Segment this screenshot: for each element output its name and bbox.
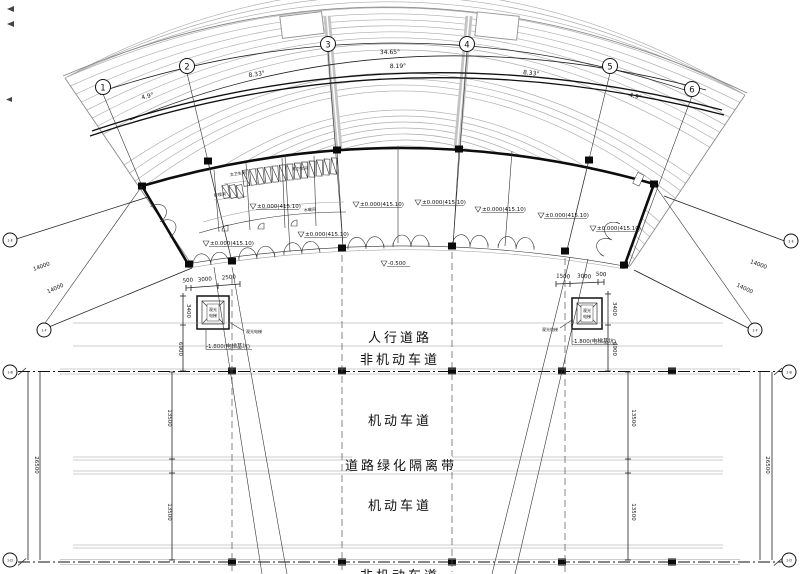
svg-text:1-B: 1-B [786,371,792,375]
elevator-label: 电梯 [209,312,217,318]
grid-bubble-4: 4 [460,37,475,52]
grid-bubble-1: 1 [96,80,111,95]
svg-text:1-F: 1-F [41,329,46,333]
corner-marks [6,6,14,102]
end-detail-box [633,172,644,186]
side-bubble-right-diag-mid: 1-F [748,323,762,337]
grid-bubble-3-label: 3 [325,41,330,51]
road-label-nonmotor-bottom: 非机动车道 [360,568,440,574]
dim-half-width: 26500 [33,456,39,474]
svg-text:1-E: 1-E [788,240,794,244]
road-zone: 人行道路 非机动车道 机动车道 道路绿化隔离带 机动车道 非机动车道 [18,252,782,574]
elevator-callout: 观光电梯 [246,328,262,334]
column-square [333,147,341,154]
elevation-marker: ±0.000(415.10) [250,204,301,210]
dim-3-4-outer: 34.65° [380,49,400,56]
side-bubble-right-row: 1-B [782,365,796,379]
dim-diag: 14000 [32,261,51,273]
room-label-2: 女卫生间 [229,169,246,177]
elevator-left: 500 3000 2500 观光 电梯 观光电梯 -1.800(电梯基坑) [182,274,262,350]
elevation-marker: ±0.000(415.10) [353,202,404,208]
side-bubble-left-diag-top: 1-E [3,233,17,247]
entry-dim: 3000 [198,276,213,283]
grid-bubble-6: 6 [685,82,700,97]
door-swing [452,234,488,247]
floor-plan-canvas: 4.9° 8.33° 34.65° 8.19° 8.33° 4.9° 1 2 3… [0,0,800,574]
dim-motor-lower: 13500 [166,503,172,521]
dim-sidewalk: 3400 [185,304,191,318]
room-label-4: 水暖间 [304,206,316,213]
dim-3-4-inner: 8.19° [390,63,406,70]
room-label-1: 男卫生间 [292,164,308,171]
site-plan-drawing: 4.9° 8.33° 34.65° 8.19° 8.33° 4.9° 1 2 3… [0,0,800,574]
road-label-nonmotor: 非机动车道 [360,352,440,368]
column-square [228,258,236,265]
grid-dimension-labels: 4.9° 8.33° 34.65° 8.19° 8.33° 4.9° [141,49,643,102]
elevator-label: 观光 [209,306,217,312]
dim-diag: 14000 [735,283,754,296]
left-end-wall [142,186,188,264]
road-label-sidewalk: 人行道路 [368,330,432,346]
svg-text:1-F: 1-F [752,329,757,333]
column-square [455,146,463,153]
grid-bubble-6-label: 6 [689,86,694,96]
elevation-marker: ±0.000(415.10) [590,226,641,232]
grid-bubble-5-label: 5 [607,63,612,73]
canopy-joints [280,12,519,150]
canopy-right-edge [630,95,745,266]
elevator-callout: 观光电梯 [542,326,558,332]
svg-text:±0.000(415.10): ±0.000(415.10) [482,207,526,213]
door-swing [348,236,384,249]
svg-text:±0.000(415.10): ±0.000(415.10) [305,232,349,238]
grid-bubble-1-label: 1 [100,84,105,94]
elevator-label: 电梯 [583,313,591,319]
door-swing [498,236,535,250]
side-bubble-left-diag-mid: 1-F [37,323,51,337]
column-square [338,245,346,252]
grid-bubble-5: 5 [603,59,618,74]
grid-bubble-4-label: 4 [464,41,469,51]
road-label-motor-upper: 机动车道 [368,413,432,429]
dim-5-6: 4.9° [628,92,642,102]
svg-text:1-B: 1-B [7,371,13,375]
column-square [561,248,569,255]
column-square [620,262,628,269]
grid-bubble-2: 2 [180,59,195,74]
column-square [448,243,456,250]
storefront-line-2 [188,250,625,269]
column-square [204,158,212,165]
door-swing [593,219,620,257]
grid-bubble-2-label: 2 [184,63,189,73]
dim-nonmotor: 6900 [177,342,183,356]
elevation-marker: ±0.000(415.10) [298,232,349,238]
side-bubble-right-diag-top: 1-E [784,234,798,248]
side-bubble-right-bottom: 1-D [782,553,796,567]
entry-dim: 500 [182,278,193,285]
svg-text:±0.000(415.10): ±0.000(415.10) [545,213,589,219]
dim-motor-upper: 13500 [630,409,636,427]
dim-nonmotor: 6900 [611,342,617,356]
entry-dim: 500 [596,272,607,279]
apron-elevation-marker: -0.500 [381,261,410,267]
svg-text:1-D: 1-D [7,559,13,563]
svg-text:-0.500: -0.500 [388,261,406,267]
grid-bubble-3: 3 [321,37,336,52]
elevator-right: 1500 3000 500 观光 电梯 观光电梯 -1.800(电梯基坑) [542,272,618,345]
entry-door-swings [150,200,619,266]
skylight-left [280,12,324,39]
svg-text:1-D: 1-D [786,559,792,563]
dim-motor-upper: 13500 [166,409,172,427]
dim-diag: 14000 [46,283,65,296]
elevation-marker: ±0.000(415.10) [415,200,466,206]
column-square [585,157,593,164]
dim-diag: 14000 [749,259,768,271]
pit-elevation: -1.800(电梯基坑) [572,337,616,345]
column-square [185,261,193,268]
elevation-marker: ±0.000(415.10) [475,207,526,213]
skylight-right [475,12,519,40]
svg-text:1-E: 1-E [7,239,13,243]
elevation-marker: ±0.000(415.10) [203,241,254,247]
entry-dim: 1500 [556,274,571,281]
elevator-label: 观光 [583,307,591,313]
side-grid-bubbles: 1-E 1-F 1-B 1-D 1-E 1-F 1-B 1-D [3,233,798,567]
dim-motor-lower: 13500 [630,503,636,521]
svg-text:±0.000(415.10): ±0.000(415.10) [257,204,301,210]
elevation-marker: ±0.000(415.10) [538,213,589,219]
svg-text:±0.000(415.10): ±0.000(415.10) [422,200,466,206]
side-bubble-left-row: 1-B [3,365,17,379]
road-label-green-belt: 道路绿化隔离带 [345,458,457,474]
svg-text:±0.000(415.10): ±0.000(415.10) [210,241,254,247]
road-label-motor-lower: 机动车道 [368,498,432,514]
door-swing [393,235,429,247]
svg-text:±0.000(415.10): ±0.000(415.10) [597,226,641,232]
dim-sidewalk: 3400 [611,302,617,316]
dim-half-width: 26500 [764,456,770,474]
svg-text:±0.000(415.10): ±0.000(415.10) [360,202,404,208]
side-bubble-left-bottom: 1-D [3,553,17,567]
